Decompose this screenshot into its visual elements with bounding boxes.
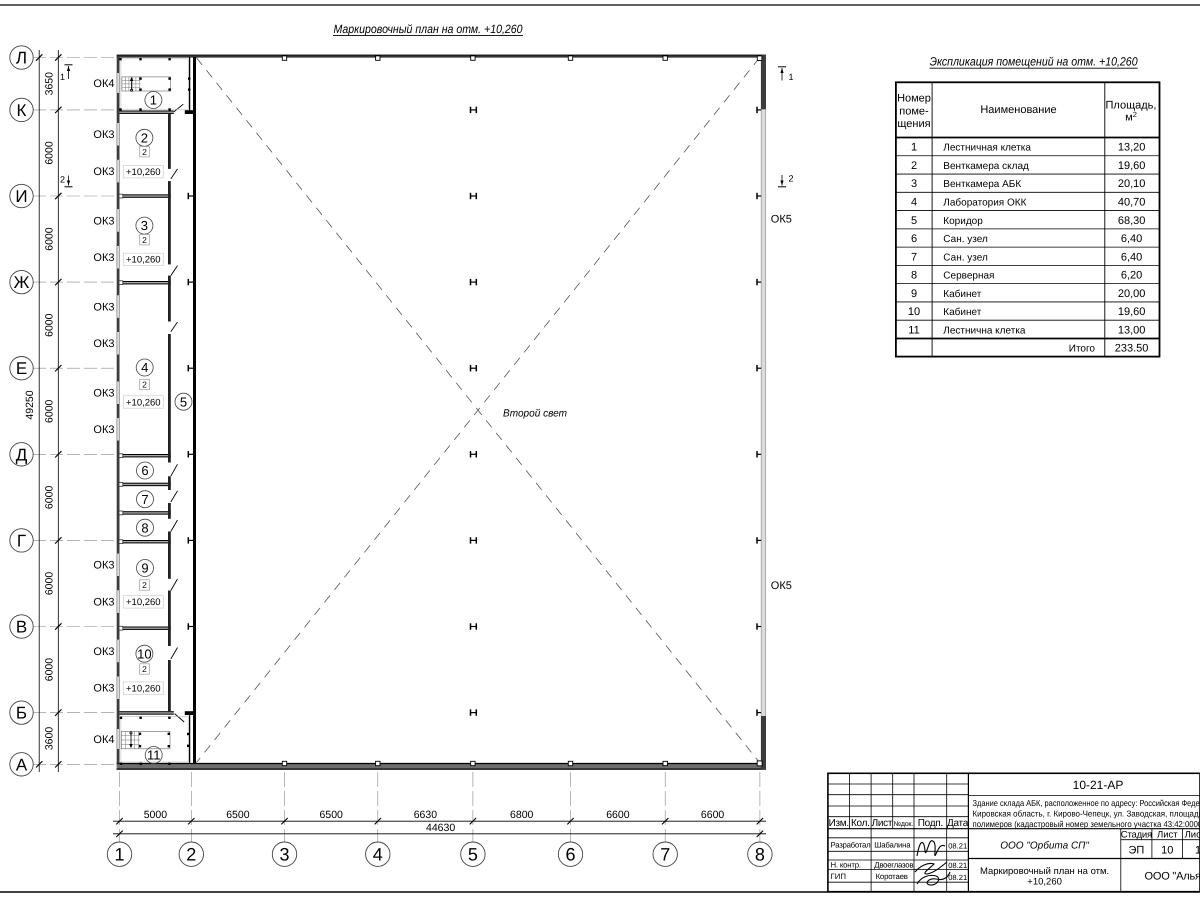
svg-text:4: 4 bbox=[373, 845, 383, 865]
svg-text:6000: 6000 bbox=[43, 141, 55, 165]
svg-text:2: 2 bbox=[911, 160, 917, 172]
svg-text:3650: 3650 bbox=[43, 72, 55, 96]
svg-text:ОК3: ОК3 bbox=[93, 387, 114, 399]
svg-text:Номер: Номер bbox=[897, 93, 931, 105]
svg-text:Двоеглазов: Двоеглазов bbox=[874, 860, 913, 869]
svg-text:44630: 44630 bbox=[426, 822, 455, 834]
svg-text:5000: 5000 bbox=[144, 809, 168, 821]
svg-text:Коротаев: Коротаев bbox=[876, 872, 908, 881]
svg-text:1: 1 bbox=[911, 142, 917, 154]
svg-text:6,20: 6,20 bbox=[1121, 270, 1142, 282]
svg-text:7: 7 bbox=[141, 492, 148, 507]
svg-text:233.50: 233.50 bbox=[1115, 343, 1149, 355]
svg-text:6630: 6630 bbox=[414, 809, 438, 821]
svg-text:6600: 6600 bbox=[606, 809, 630, 821]
svg-text:ОК3: ОК3 bbox=[93, 560, 114, 572]
svg-text:20,10: 20,10 bbox=[1118, 178, 1146, 190]
svg-text:Лестничная клетка: Лестничная клетка bbox=[943, 143, 1031, 154]
svg-text:5: 5 bbox=[468, 845, 478, 865]
svg-text:6500: 6500 bbox=[226, 809, 250, 821]
svg-text:2: 2 bbox=[186, 845, 196, 865]
svg-text:Кабинет: Кабинет bbox=[943, 289, 981, 300]
svg-text:2: 2 bbox=[789, 174, 794, 184]
svg-text:7: 7 bbox=[660, 845, 670, 865]
svg-text:ООО "Альянс: ООО "Альянс bbox=[1145, 871, 1200, 883]
svg-text:13,20: 13,20 bbox=[1118, 142, 1146, 154]
svg-text:ОК3: ОК3 bbox=[93, 682, 114, 694]
svg-text:ООО "Орбита СП": ООО "Орбита СП" bbox=[1000, 841, 1089, 852]
svg-text:А: А bbox=[16, 755, 28, 774]
svg-text:Лист: Лист bbox=[1157, 830, 1178, 841]
svg-text:1: 1 bbox=[1195, 845, 1200, 857]
svg-text:3: 3 bbox=[911, 178, 917, 190]
svg-text:Б: Б bbox=[16, 704, 27, 723]
svg-text:2: 2 bbox=[142, 235, 147, 245]
svg-text:3600: 3600 bbox=[43, 727, 55, 751]
svg-text:+10,260: +10,260 bbox=[1027, 877, 1062, 888]
svg-text:+10,260: +10,260 bbox=[126, 167, 161, 178]
svg-text:19,60: 19,60 bbox=[1118, 160, 1146, 172]
svg-text:Ж: Ж bbox=[14, 273, 30, 292]
svg-text:№док.: №док. bbox=[894, 821, 914, 828]
svg-text:В: В bbox=[16, 617, 27, 636]
svg-text:Шабалина: Шабалина bbox=[874, 841, 911, 850]
svg-text:Разработал: Разработал bbox=[831, 841, 872, 850]
svg-text:4: 4 bbox=[911, 197, 917, 209]
svg-text:ОК3: ОК3 bbox=[93, 646, 114, 658]
svg-text:6: 6 bbox=[141, 463, 148, 478]
svg-text:Наименование: Наименование bbox=[980, 104, 1056, 116]
svg-text:Сан. узел: Сан. узел bbox=[943, 252, 988, 263]
svg-text:2: 2 bbox=[142, 380, 147, 390]
svg-text:11: 11 bbox=[908, 324, 919, 336]
svg-text:м2: м2 bbox=[1125, 110, 1137, 124]
svg-text:Серверная: Серверная bbox=[943, 271, 994, 282]
svg-text:5: 5 bbox=[911, 215, 917, 227]
svg-text:1: 1 bbox=[150, 93, 157, 108]
svg-text:Кол.: Кол. bbox=[851, 818, 870, 829]
svg-text:6000: 6000 bbox=[43, 572, 55, 596]
svg-text:3: 3 bbox=[141, 218, 148, 233]
svg-text:Экспликация помещений на отм.: Экспликация помещений на отм. +10,260 bbox=[930, 55, 1138, 69]
svg-text:4: 4 bbox=[141, 360, 148, 375]
svg-text:8: 8 bbox=[141, 520, 148, 535]
svg-text:10-21-АР: 10-21-АР bbox=[1073, 778, 1124, 792]
svg-text:1: 1 bbox=[789, 72, 794, 82]
svg-text:08.21: 08.21 bbox=[948, 873, 967, 882]
svg-text:2: 2 bbox=[141, 130, 148, 145]
svg-text:Д: Д bbox=[16, 445, 28, 464]
svg-text:ОК3: ОК3 bbox=[93, 129, 114, 141]
svg-text:Е: Е bbox=[16, 359, 27, 378]
svg-text:Л: Л bbox=[16, 48, 27, 67]
svg-text:6: 6 bbox=[911, 233, 917, 245]
svg-text:И: И bbox=[15, 187, 27, 206]
svg-text:1: 1 bbox=[114, 845, 124, 865]
svg-text:Лаборатория ОКК: Лаборатория ОКК bbox=[943, 198, 1026, 209]
svg-text:6000: 6000 bbox=[43, 399, 55, 423]
svg-text:68,30: 68,30 bbox=[1118, 215, 1146, 227]
svg-text:щения: щения bbox=[897, 118, 930, 130]
svg-text:6500: 6500 bbox=[320, 809, 344, 821]
svg-text:К: К bbox=[17, 101, 27, 120]
svg-text:Кировская область, г. Кирово-Ч: Кировская область, г. Кирово-Чепецк, ул.… bbox=[973, 809, 1200, 819]
svg-text:7: 7 bbox=[911, 251, 917, 263]
svg-text:3: 3 bbox=[279, 845, 289, 865]
svg-text:Дата: Дата bbox=[947, 818, 969, 829]
svg-text:40,70: 40,70 bbox=[1118, 197, 1146, 209]
svg-text:ОК3: ОК3 bbox=[93, 424, 114, 436]
svg-text:ОК3: ОК3 bbox=[93, 252, 114, 264]
svg-text:Н. контр.: Н. контр. bbox=[831, 860, 861, 869]
svg-text:6,40: 6,40 bbox=[1121, 233, 1142, 245]
svg-text:Г: Г bbox=[17, 531, 26, 550]
svg-text:+10,260: +10,260 bbox=[126, 397, 161, 408]
svg-text:11: 11 bbox=[147, 748, 161, 763]
svg-text:10: 10 bbox=[1161, 845, 1173, 857]
svg-text:Кабинет: Кабинет bbox=[943, 307, 981, 318]
svg-text:08.21: 08.21 bbox=[948, 861, 967, 870]
svg-text:8: 8 bbox=[911, 270, 917, 282]
svg-text:9: 9 bbox=[911, 288, 917, 300]
svg-text:Стадия: Стадия bbox=[1121, 830, 1152, 841]
svg-text:6800: 6800 bbox=[510, 809, 534, 821]
svg-text:6600: 6600 bbox=[701, 809, 725, 821]
svg-text:Лестнична клетка: Лестнична клетка bbox=[943, 325, 1026, 336]
svg-text:Листов: Листов bbox=[1185, 830, 1200, 841]
svg-text:5: 5 bbox=[180, 394, 187, 409]
svg-text:2: 2 bbox=[142, 580, 147, 590]
svg-text:Изм.: Изм. bbox=[829, 818, 849, 829]
svg-text:2: 2 bbox=[60, 175, 65, 185]
svg-text:19,60: 19,60 bbox=[1118, 306, 1146, 318]
svg-text:9: 9 bbox=[141, 561, 148, 576]
svg-text:Площадь,: Площадь, bbox=[1106, 100, 1157, 112]
svg-text:ОК4: ОК4 bbox=[93, 78, 114, 90]
svg-text:49250: 49250 bbox=[24, 390, 36, 419]
svg-text:20,00: 20,00 bbox=[1118, 288, 1146, 300]
svg-text:ОК3: ОК3 bbox=[93, 215, 114, 227]
svg-text:Венткамера АБК: Венткамера АБК bbox=[943, 179, 1021, 190]
svg-text:6000: 6000 bbox=[43, 227, 55, 251]
svg-text:ЭП: ЭП bbox=[1128, 845, 1144, 857]
svg-text:1: 1 bbox=[60, 72, 65, 82]
svg-text:поме-: поме- bbox=[899, 105, 929, 117]
svg-text:6000: 6000 bbox=[43, 658, 55, 682]
svg-text:+10,260: +10,260 bbox=[126, 255, 161, 266]
svg-text:6000: 6000 bbox=[43, 486, 55, 510]
svg-text:+10,260: +10,260 bbox=[126, 597, 161, 608]
svg-text:ОК4: ОК4 bbox=[93, 734, 114, 746]
svg-text:Маркировочный план на отм. +10: Маркировочный план на отм. +10,260 bbox=[334, 22, 523, 36]
svg-text:Лист: Лист bbox=[872, 818, 893, 829]
svg-text:8: 8 bbox=[755, 845, 765, 865]
svg-text:2: 2 bbox=[142, 147, 147, 157]
svg-text:Маркировочный план на отм.: Маркировочный план на отм. bbox=[980, 866, 1109, 877]
svg-text:Сан. узел: Сан. узел bbox=[943, 234, 988, 245]
svg-text:Венткамера склад: Венткамера склад bbox=[943, 161, 1029, 172]
svg-text:ОК3: ОК3 bbox=[93, 301, 114, 313]
svg-text:ОК3: ОК3 bbox=[93, 166, 114, 178]
svg-text:10: 10 bbox=[908, 306, 920, 318]
svg-text:ОК5: ОК5 bbox=[771, 580, 792, 592]
svg-text:6000: 6000 bbox=[43, 313, 55, 337]
svg-text:13,00: 13,00 bbox=[1118, 324, 1146, 336]
svg-text:Здание склада АБК, расположенн: Здание склада АБК, расположенное по адре… bbox=[973, 798, 1200, 808]
svg-text:ОК3: ОК3 bbox=[93, 338, 114, 350]
svg-text:полимеров (кадастровый номер з: полимеров (кадастровый номер земельного … bbox=[973, 819, 1200, 829]
svg-text:Коридор: Коридор bbox=[943, 216, 983, 227]
svg-text:Подп.: Подп. bbox=[918, 818, 943, 829]
svg-text:Второй свет: Второй свет bbox=[503, 408, 567, 420]
svg-text:ОК3: ОК3 bbox=[93, 596, 114, 608]
svg-text:+10,260: +10,260 bbox=[126, 683, 161, 694]
svg-text:6: 6 bbox=[565, 845, 575, 865]
svg-text:2: 2 bbox=[142, 664, 147, 674]
svg-text:08.21: 08.21 bbox=[948, 842, 967, 851]
svg-text:ГИП: ГИП bbox=[831, 872, 846, 881]
svg-text:10: 10 bbox=[137, 646, 151, 661]
svg-text:ОК5: ОК5 bbox=[771, 214, 792, 226]
svg-text:6,40: 6,40 bbox=[1121, 251, 1142, 263]
svg-text:Итого: Итого bbox=[1069, 344, 1096, 355]
